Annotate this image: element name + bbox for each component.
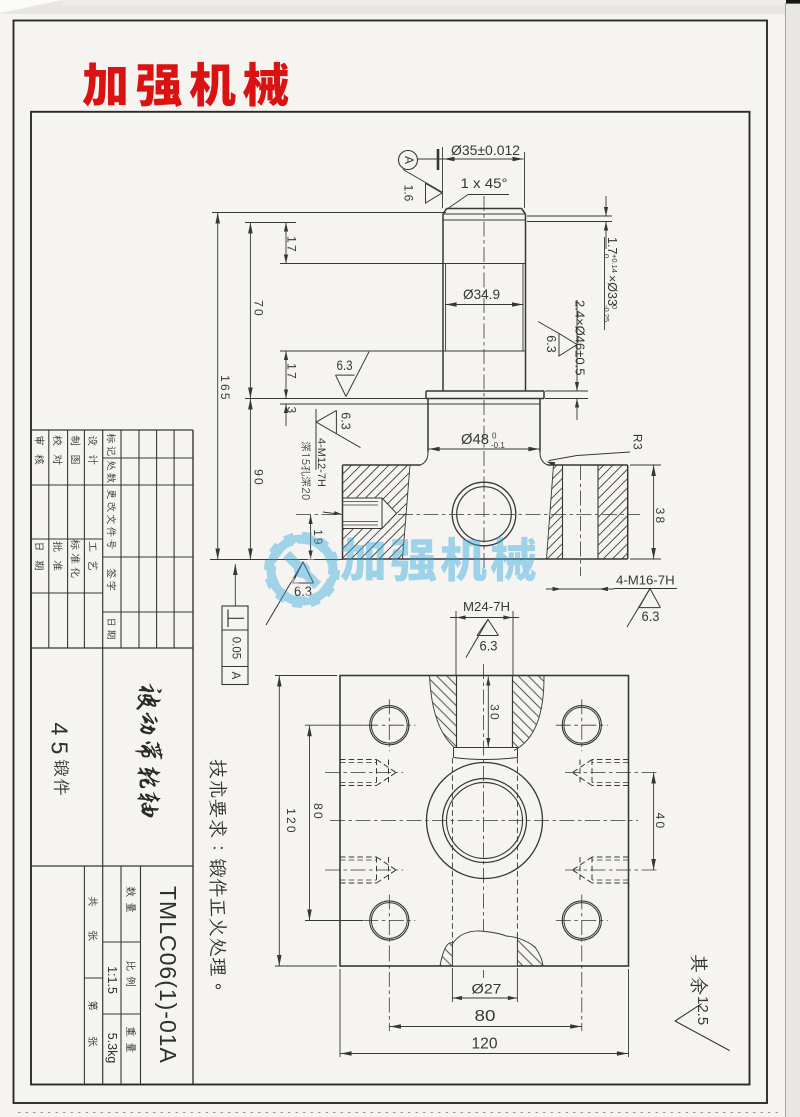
svg-text:0: 0 [492,432,497,441]
svg-text:Ø48: Ø48 [461,432,489,448]
svg-text:4-M16-7H: 4-M16-7H [616,573,675,588]
svg-text:Ø34.9: Ø34.9 [463,286,500,302]
svg-text:-0.25: -0.25 [602,305,611,322]
svg-text:A: A [402,156,416,164]
svg-text:90: 90 [252,469,266,487]
svg-text:1:1.5: 1:1.5 [105,966,119,994]
svg-text:6.3: 6.3 [339,412,353,429]
svg-text:70: 70 [252,300,266,318]
svg-text:3: 3 [285,407,299,416]
svg-text:4: 4 [47,723,73,738]
svg-text:6.3: 6.3 [642,609,660,624]
svg-text:80: 80 [311,803,325,821]
svg-text:12.5: 12.5 [694,996,711,1025]
svg-text:0.05: 0.05 [229,637,241,659]
svg-text:38: 38 [653,508,667,526]
svg-text:6.3: 6.3 [337,357,353,373]
svg-text:A: A [229,672,241,680]
svg-text:2.4×Ø46±0.5: 2.4×Ø46±0.5 [573,300,588,375]
svg-text:80: 80 [475,1008,496,1025]
svg-text:120: 120 [472,1036,498,1053]
svg-text:6.3: 6.3 [480,639,498,654]
svg-text:R3: R3 [631,434,645,450]
svg-text:120: 120 [284,808,298,835]
svg-text:Ø35±0.012: Ø35±0.012 [451,143,520,158]
svg-text:6.3: 6.3 [544,335,558,352]
svg-text:1.7: 1.7 [605,237,619,254]
svg-text:0: 0 [602,254,611,258]
svg-text:TMLC06(1)-01A: TMLC06(1)-01A [155,886,181,1064]
svg-text:17: 17 [285,363,299,381]
svg-text:1 x 45°: 1 x 45° [461,175,508,191]
svg-text:17: 17 [285,236,299,254]
svg-text:165: 165 [218,375,232,402]
svg-text:Ø27: Ø27 [472,982,502,997]
svg-text:5: 5 [47,742,73,757]
svg-text:40: 40 [653,813,667,831]
svg-text:×Ø33: ×Ø33 [605,275,619,306]
svg-text:5.3kg: 5.3kg [105,1033,119,1064]
svg-text:30: 30 [488,704,502,722]
svg-text:1.6: 1.6 [402,185,416,202]
svg-text:4-M12-7H: 4-M12-7H [315,438,327,487]
svg-text:M24-7H: M24-7H [463,599,510,614]
